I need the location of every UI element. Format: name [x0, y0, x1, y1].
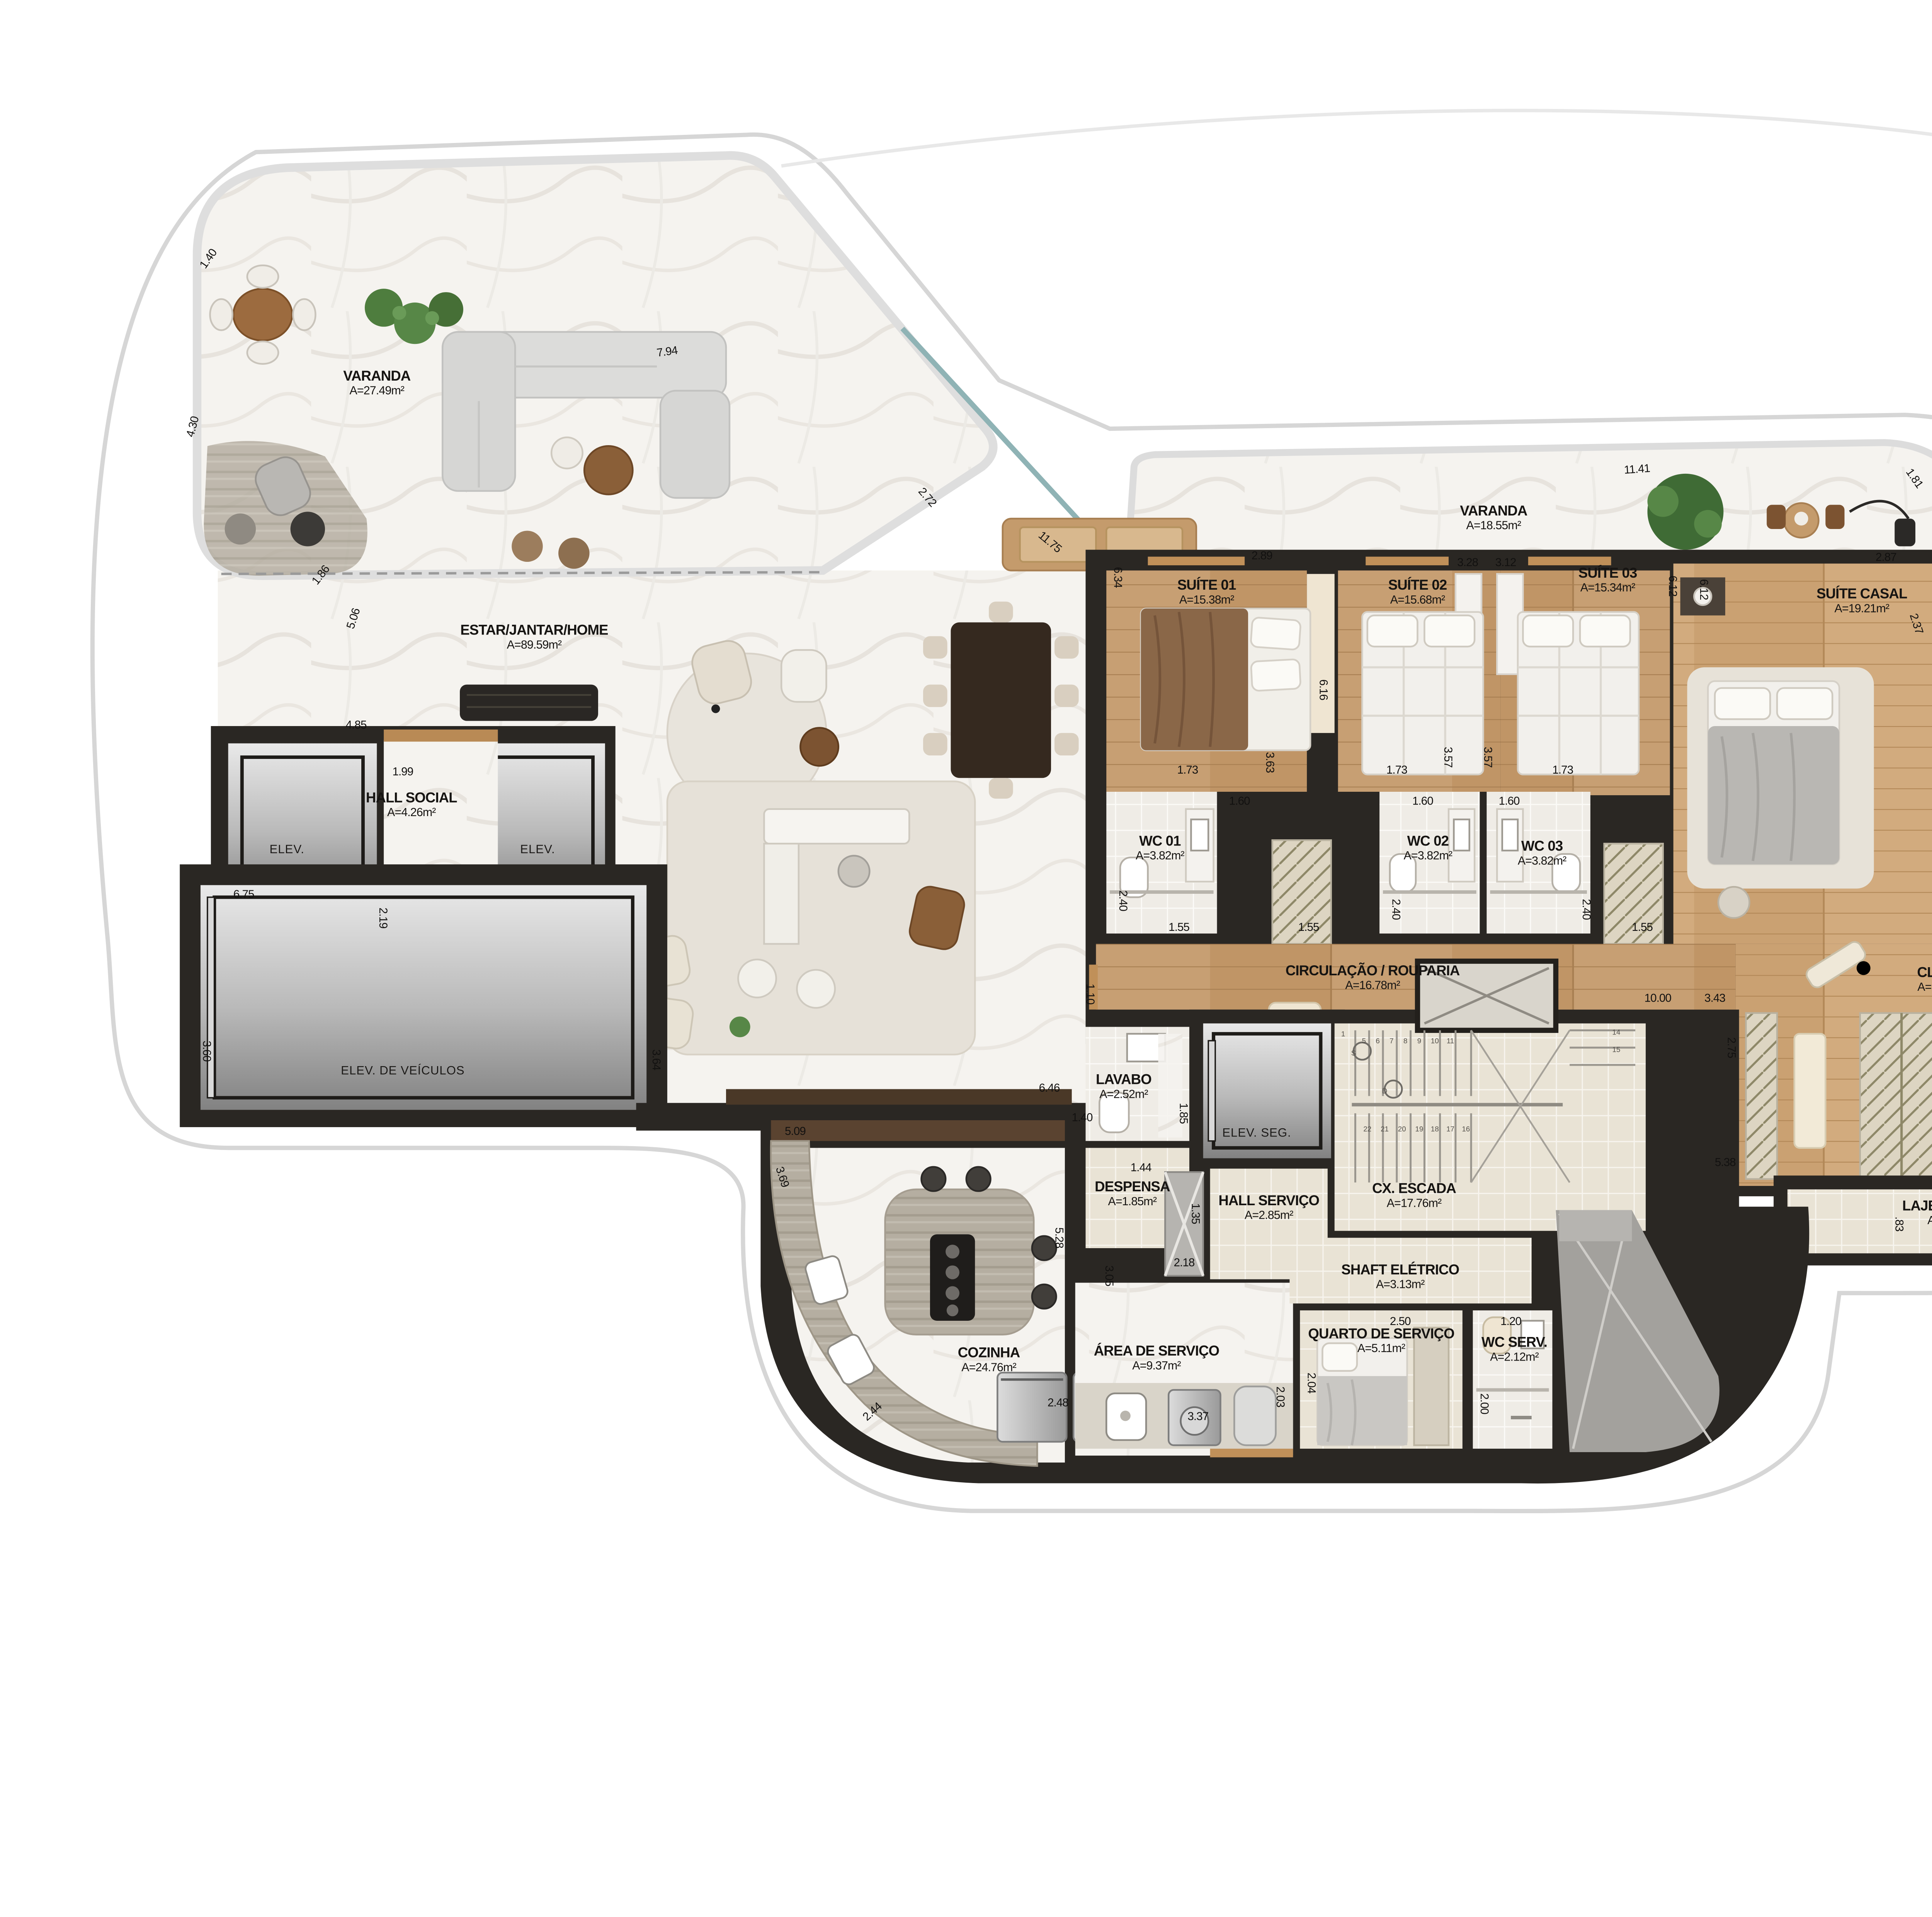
area-servico	[1075, 1283, 1293, 1456]
tv-sideboard	[460, 685, 598, 721]
wc-02	[1379, 792, 1480, 934]
shaft-eletrico-floor	[1289, 1238, 1531, 1303]
wc-03	[1486, 792, 1590, 934]
closet	[1736, 939, 1932, 1186]
duct-shaft	[1165, 1172, 1203, 1276]
suite-03	[1497, 570, 1670, 795]
rouparia-shelf-2	[1604, 844, 1663, 944]
wc-servico	[1473, 1310, 1553, 1449]
floor-plan-drawing	[0, 0, 1932, 1917]
suite-02	[1338, 570, 1501, 792]
suite-casal	[1673, 563, 1932, 944]
lavabo	[1086, 1027, 1189, 1141]
wc-01	[1106, 792, 1217, 934]
floor-plan-canvas: VARANDAA=27.49m²ESTAR/JANTAR/HOMEA=89.59…	[0, 0, 1932, 1917]
quarto-servico	[1300, 1310, 1463, 1449]
home-office	[643, 781, 975, 1055]
elevator-seg	[1189, 1010, 1345, 1169]
vehicle-elevator	[180, 864, 667, 1127]
rouparia-shelf-1	[1272, 840, 1331, 944]
long-wood-console	[726, 1089, 1072, 1104]
suite-01	[1106, 570, 1335, 792]
